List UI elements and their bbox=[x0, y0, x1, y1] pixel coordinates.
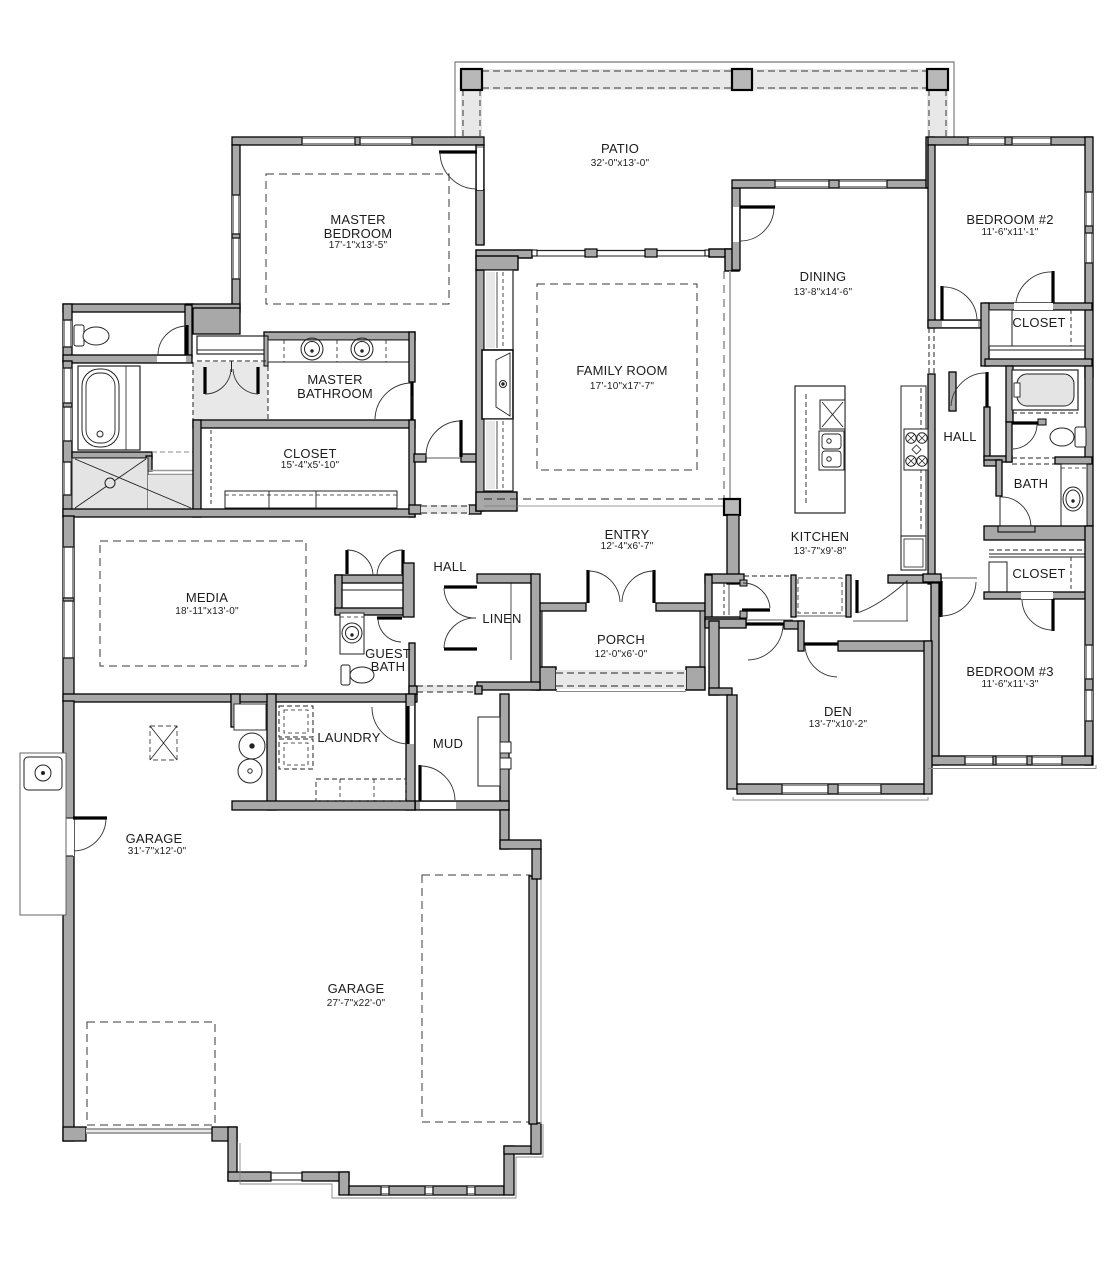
svg-text:11'-6"x11'-1": 11'-6"x11'-1" bbox=[981, 227, 1038, 238]
svg-text:BATHROOM: BATHROOM bbox=[297, 386, 373, 401]
svg-text:13'-7"x9'-8": 13'-7"x9'-8" bbox=[794, 546, 847, 557]
svg-text:DINING: DINING bbox=[800, 269, 847, 284]
svg-text:15'-4"x5'-10": 15'-4"x5'-10" bbox=[281, 460, 340, 471]
svg-text:CLOSET: CLOSET bbox=[1012, 315, 1065, 330]
svg-text:BATH: BATH bbox=[371, 659, 406, 674]
svg-text:CLOSET: CLOSET bbox=[1012, 566, 1065, 581]
svg-text:MUD: MUD bbox=[433, 736, 463, 751]
svg-text:PORCH: PORCH bbox=[597, 632, 645, 647]
svg-text:27'-7"x22'-0": 27'-7"x22'-0" bbox=[327, 998, 386, 1009]
svg-text:17'-1"x13'-5": 17'-1"x13'-5" bbox=[329, 240, 388, 251]
svg-text:KITCHEN: KITCHEN bbox=[791, 529, 849, 544]
svg-text:GARAGE: GARAGE bbox=[126, 831, 183, 846]
svg-text:12'-0"x6'-0": 12'-0"x6'-0" bbox=[595, 649, 648, 660]
svg-text:MASTER: MASTER bbox=[330, 212, 385, 227]
svg-text:PATIO: PATIO bbox=[601, 141, 639, 156]
svg-text:LAUNDRY: LAUNDRY bbox=[317, 730, 380, 745]
svg-text:11'-6"x11'-3": 11'-6"x11'-3" bbox=[981, 679, 1038, 690]
svg-text:FAMILY ROOM: FAMILY ROOM bbox=[576, 363, 667, 378]
svg-text:HALL: HALL bbox=[943, 429, 976, 444]
svg-text:BATH: BATH bbox=[1014, 476, 1049, 491]
svg-text:BEDROOM: BEDROOM bbox=[324, 226, 393, 241]
svg-text:CLOSET: CLOSET bbox=[283, 446, 336, 461]
svg-text:18'-11"x13'-0": 18'-11"x13'-0" bbox=[175, 606, 239, 617]
svg-text:HALL: HALL bbox=[433, 559, 466, 574]
svg-text:MEDIA: MEDIA bbox=[186, 590, 228, 605]
svg-text:12'-4"x6'-7": 12'-4"x6'-7" bbox=[601, 541, 654, 552]
svg-text:32'-0"x13'-0": 32'-0"x13'-0" bbox=[591, 158, 650, 169]
svg-text:13'-7"x10'-2": 13'-7"x10'-2" bbox=[809, 719, 868, 730]
svg-text:BEDROOM #3: BEDROOM #3 bbox=[966, 664, 1053, 679]
svg-text:GARAGE: GARAGE bbox=[328, 981, 385, 996]
svg-text:LINEN: LINEN bbox=[482, 611, 521, 626]
svg-text:17'-10"x17'-7": 17'-10"x17'-7" bbox=[590, 381, 655, 392]
svg-text:BEDROOM #2: BEDROOM #2 bbox=[966, 212, 1053, 227]
svg-text:13'-8"x14'-6": 13'-8"x14'-6" bbox=[794, 287, 853, 298]
svg-text:ENTRY: ENTRY bbox=[605, 527, 650, 542]
svg-text:31'-7"x12'-0": 31'-7"x12'-0" bbox=[128, 846, 187, 857]
svg-text:DEN: DEN bbox=[824, 704, 852, 719]
svg-text:MASTER: MASTER bbox=[307, 372, 362, 387]
